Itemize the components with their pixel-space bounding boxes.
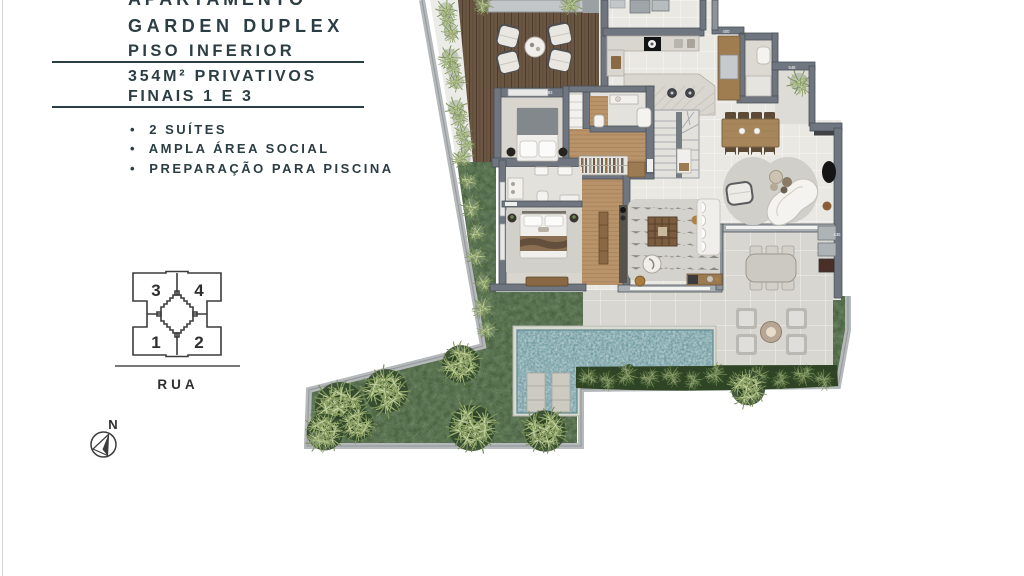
svg-text:2: 2 (194, 333, 203, 352)
svg-text:400: 400 (723, 29, 731, 34)
svg-text:548: 548 (789, 65, 797, 70)
svg-text:193: 193 (546, 90, 554, 95)
svg-text:1: 1 (151, 333, 160, 352)
svg-text:RUA: RUA (157, 377, 198, 392)
svg-text:3: 3 (151, 281, 160, 300)
svg-text:N: N (108, 417, 117, 432)
svg-text:4: 4 (194, 281, 204, 300)
svg-text:435: 435 (834, 232, 842, 237)
